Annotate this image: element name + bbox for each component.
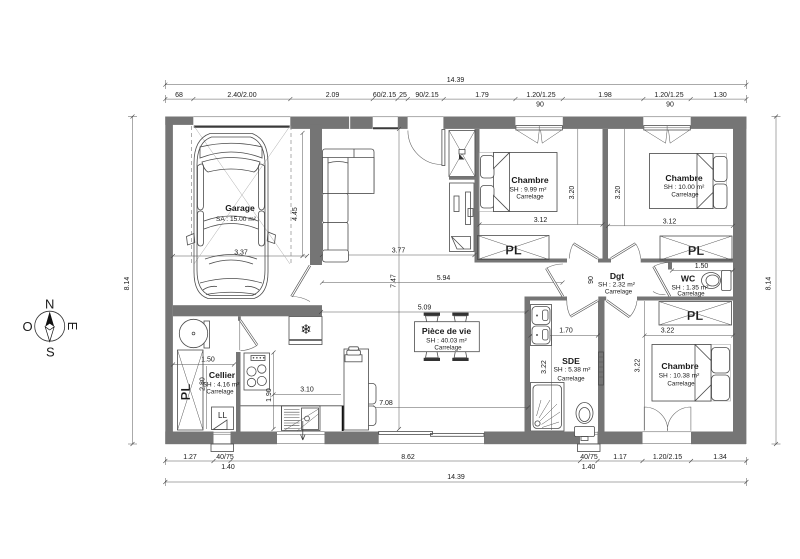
- svg-text:8.14: 8.14: [124, 277, 131, 291]
- svg-text:1.30: 1.30: [713, 92, 727, 99]
- svg-text:LL: LL: [218, 411, 227, 420]
- svg-text:Carrelage: Carrelage: [605, 289, 633, 296]
- svg-text:1.34: 1.34: [713, 454, 727, 461]
- svg-text:SH : 10.00 m²: SH : 10.00 m²: [664, 184, 705, 191]
- svg-text:90: 90: [536, 101, 544, 108]
- svg-text:3.20: 3.20: [569, 186, 576, 200]
- svg-text:1.20/1.25: 1.20/1.25: [654, 92, 683, 99]
- svg-text:PL: PL: [688, 243, 705, 258]
- svg-text:N: N: [45, 297, 54, 312]
- svg-text:WC: WC: [681, 274, 695, 284]
- svg-text:3.77: 3.77: [392, 248, 406, 255]
- svg-text:7.47: 7.47: [391, 274, 398, 288]
- svg-text:25: 25: [399, 92, 407, 99]
- svg-text:SH : 9.99 m²: SH : 9.99 m²: [509, 187, 547, 194]
- svg-text:3.12: 3.12: [663, 218, 677, 225]
- svg-text:2.40/2.00: 2.40/2.00: [227, 92, 256, 99]
- svg-text:1.70: 1.70: [559, 328, 573, 335]
- svg-text:1.27: 1.27: [183, 454, 197, 461]
- svg-text:8.14: 8.14: [766, 277, 773, 291]
- svg-text:SH : 4.16 m²: SH : 4.16 m²: [202, 382, 240, 389]
- svg-text:O: O: [22, 319, 32, 334]
- svg-text:1.20/2.15: 1.20/2.15: [653, 454, 682, 461]
- svg-text:Carrelage: Carrelage: [557, 376, 585, 383]
- svg-text:PL: PL: [178, 384, 193, 401]
- svg-text:40/75: 40/75: [216, 454, 234, 461]
- svg-text:Carrelage: Carrelage: [677, 291, 705, 298]
- svg-text:SDE: SDE: [562, 356, 580, 366]
- svg-text:2.09: 2.09: [326, 92, 340, 99]
- svg-text:PL: PL: [687, 308, 704, 323]
- svg-text:SA : 15.00 m²: SA : 15.00 m²: [216, 216, 257, 223]
- svg-text:Carrelage: Carrelage: [667, 381, 695, 388]
- svg-text:5.94: 5.94: [437, 275, 451, 282]
- svg-text:14.39: 14.39: [447, 77, 465, 84]
- svg-text:❄: ❄: [300, 322, 311, 337]
- svg-text:3.22: 3.22: [661, 328, 675, 335]
- svg-text:Chambre: Chambre: [511, 175, 548, 185]
- svg-text:Garage: Garage: [225, 203, 255, 213]
- svg-text:1.40: 1.40: [221, 464, 235, 471]
- svg-text:Cellier: Cellier: [209, 370, 236, 380]
- svg-text:60/2.15: 60/2.15: [373, 92, 396, 99]
- svg-text:7.08: 7.08: [379, 400, 393, 407]
- svg-text:SH : 40.03 m²: SH : 40.03 m²: [426, 338, 467, 345]
- svg-text:Chambre: Chambre: [665, 173, 702, 183]
- svg-text:Carrelage: Carrelage: [434, 345, 462, 352]
- svg-text:1.98: 1.98: [598, 92, 612, 99]
- svg-text:3.22: 3.22: [541, 360, 548, 374]
- svg-text:PL: PL: [505, 243, 522, 258]
- svg-text:SH : 10.38 m²: SH : 10.38 m²: [659, 373, 700, 380]
- svg-text:5.09: 5.09: [418, 305, 432, 312]
- svg-text:S: S: [46, 345, 55, 360]
- svg-text:Dgt: Dgt: [610, 271, 624, 281]
- svg-text:SH : 5.38 m²: SH : 5.38 m²: [553, 367, 591, 374]
- svg-text:1.50: 1.50: [695, 263, 709, 270]
- svg-text:1.79: 1.79: [475, 92, 489, 99]
- svg-text:SH : 2.32 m²: SH : 2.32 m²: [598, 282, 636, 289]
- svg-text:90: 90: [588, 276, 595, 284]
- svg-text:Carrelage: Carrelage: [671, 192, 699, 199]
- svg-text:1.20/1.25: 1.20/1.25: [526, 92, 555, 99]
- svg-text:3.10: 3.10: [300, 387, 314, 394]
- svg-text:90/2.15: 90/2.15: [415, 92, 438, 99]
- svg-text:Carrelage: Carrelage: [206, 389, 234, 396]
- svg-text:40/75: 40/75: [580, 454, 598, 461]
- svg-text:3.12: 3.12: [534, 217, 548, 224]
- svg-text:Pièce de vie: Pièce de vie: [422, 326, 471, 336]
- svg-text:Carrelage: Carrelage: [516, 194, 544, 201]
- svg-text:90: 90: [666, 101, 674, 108]
- svg-text:1.40: 1.40: [582, 464, 596, 471]
- svg-text:3.20: 3.20: [615, 186, 622, 200]
- svg-text:3.22: 3.22: [635, 359, 642, 373]
- svg-text:68: 68: [175, 92, 183, 99]
- svg-text:E: E: [65, 322, 80, 331]
- svg-text:14.39: 14.39: [447, 474, 465, 481]
- svg-text:Chambre: Chambre: [661, 361, 698, 371]
- svg-text:4.45: 4.45: [292, 207, 299, 221]
- svg-text:1.17: 1.17: [613, 454, 627, 461]
- svg-text:8.62: 8.62: [401, 454, 415, 461]
